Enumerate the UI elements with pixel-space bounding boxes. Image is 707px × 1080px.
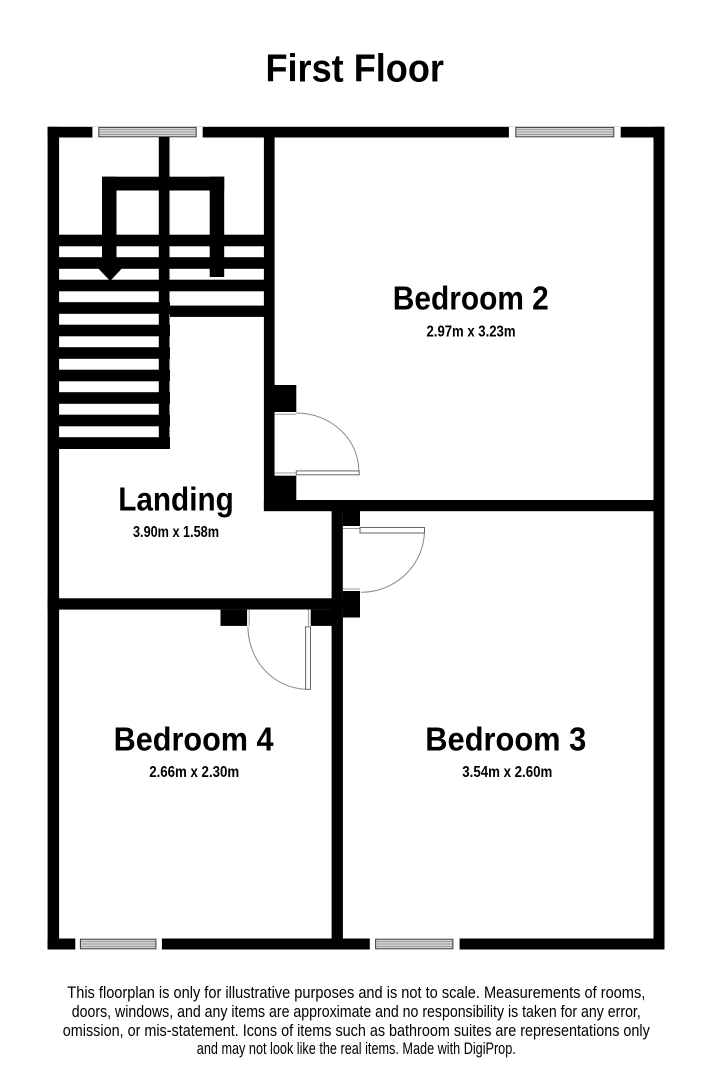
svg-text:Bedroom 3: Bedroom 3 bbox=[425, 720, 586, 757]
svg-text:This floorplan is only for ill: This floorplan is only for illustrative … bbox=[67, 983, 645, 1002]
svg-text:doors, windows, and any items: doors, windows, and any items are approx… bbox=[72, 1002, 641, 1021]
svg-text:2.66m x 2.30m: 2.66m x 2.30m bbox=[149, 764, 239, 781]
svg-text:Bedroom 4: Bedroom 4 bbox=[114, 720, 275, 757]
svg-text:3.90m x 1.58m: 3.90m x 1.58m bbox=[133, 524, 219, 541]
svg-text:and may not look like the real: and may not look like the real items. Ma… bbox=[197, 1039, 516, 1058]
svg-text:3.54m x 2.60m: 3.54m x 2.60m bbox=[462, 764, 552, 781]
svg-text:Bedroom 2: Bedroom 2 bbox=[393, 280, 549, 317]
svg-text:omission, or mis-statement. Ic: omission, or mis-statement. Icons of ite… bbox=[63, 1021, 650, 1040]
svg-text:First Floor: First Floor bbox=[265, 47, 444, 90]
svg-text:Landing: Landing bbox=[118, 480, 234, 517]
svg-text:2.97m x 3.23m: 2.97m x 3.23m bbox=[427, 324, 516, 341]
